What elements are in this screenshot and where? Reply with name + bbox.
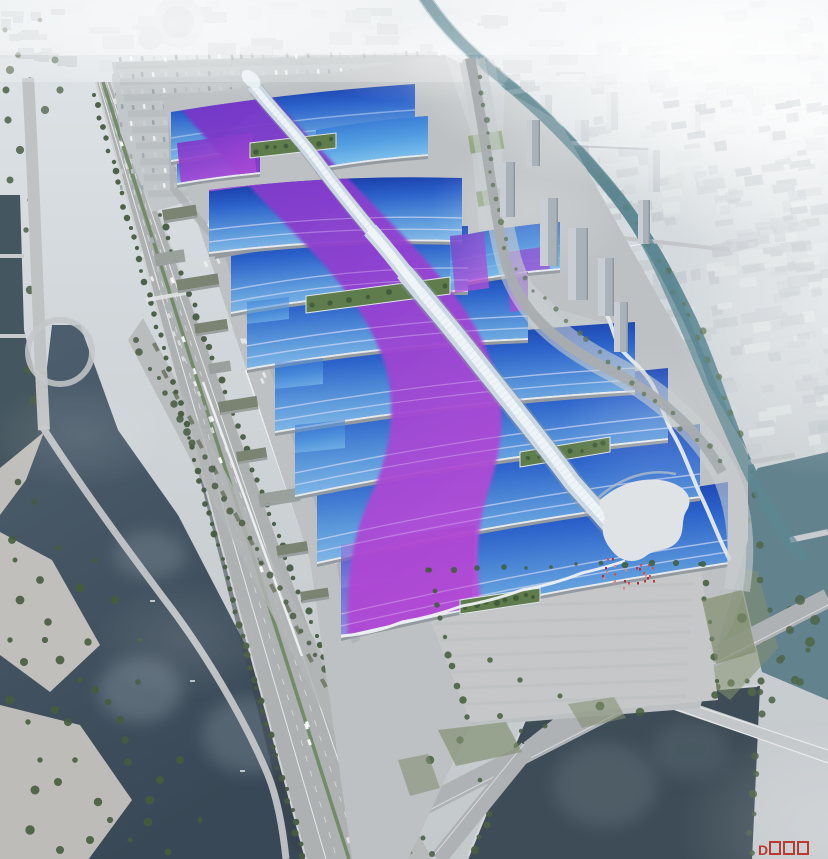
svg-text:D: D — [758, 842, 768, 858]
